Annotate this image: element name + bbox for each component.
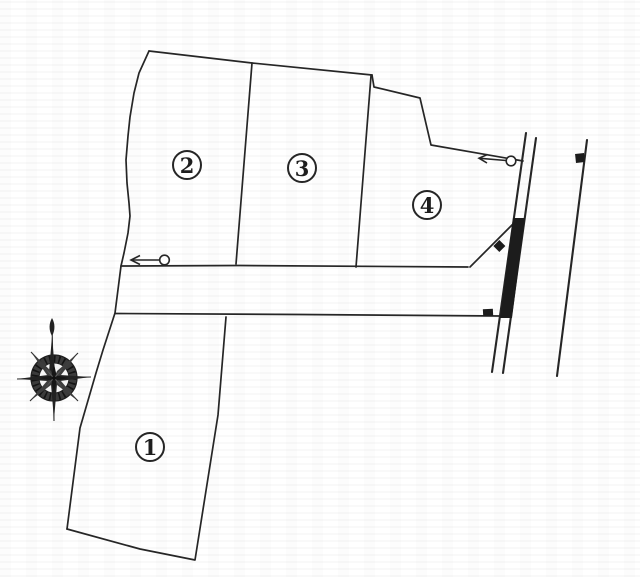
- plot-outline-drawing: [0, 0, 640, 577]
- lot-1-number: 1: [143, 437, 158, 458]
- compass-north-spear: [50, 318, 55, 336]
- lot-2-label: 2: [172, 150, 202, 180]
- lot-3-number: 3: [295, 158, 310, 179]
- boundary-lot3-lot4: [356, 76, 371, 267]
- boundary-lot2-lot3: [236, 63, 252, 264]
- left-arrow-with-circle-marker-west: [131, 255, 169, 265]
- square-marker-road-end: [483, 309, 493, 317]
- site-plan: 1 2 3 4: [0, 0, 640, 577]
- lot-4-label: 4: [412, 190, 442, 220]
- boundary-north: [149, 51, 372, 75]
- lot-1-label: 1: [135, 432, 165, 462]
- road-north-edge: [121, 266, 468, 268]
- lot-4-number: 4: [420, 195, 435, 216]
- road-far-right-line: [557, 140, 587, 376]
- square-marker-right-road: [575, 153, 585, 163]
- boundary-west: [67, 51, 149, 529]
- boundary-lot4-top: [372, 75, 523, 161]
- compass-rose-icon: [17, 318, 91, 421]
- road-south-edge: [115, 314, 500, 317]
- lot-2-number: 2: [180, 155, 195, 176]
- lot-3-label: 3: [287, 153, 317, 183]
